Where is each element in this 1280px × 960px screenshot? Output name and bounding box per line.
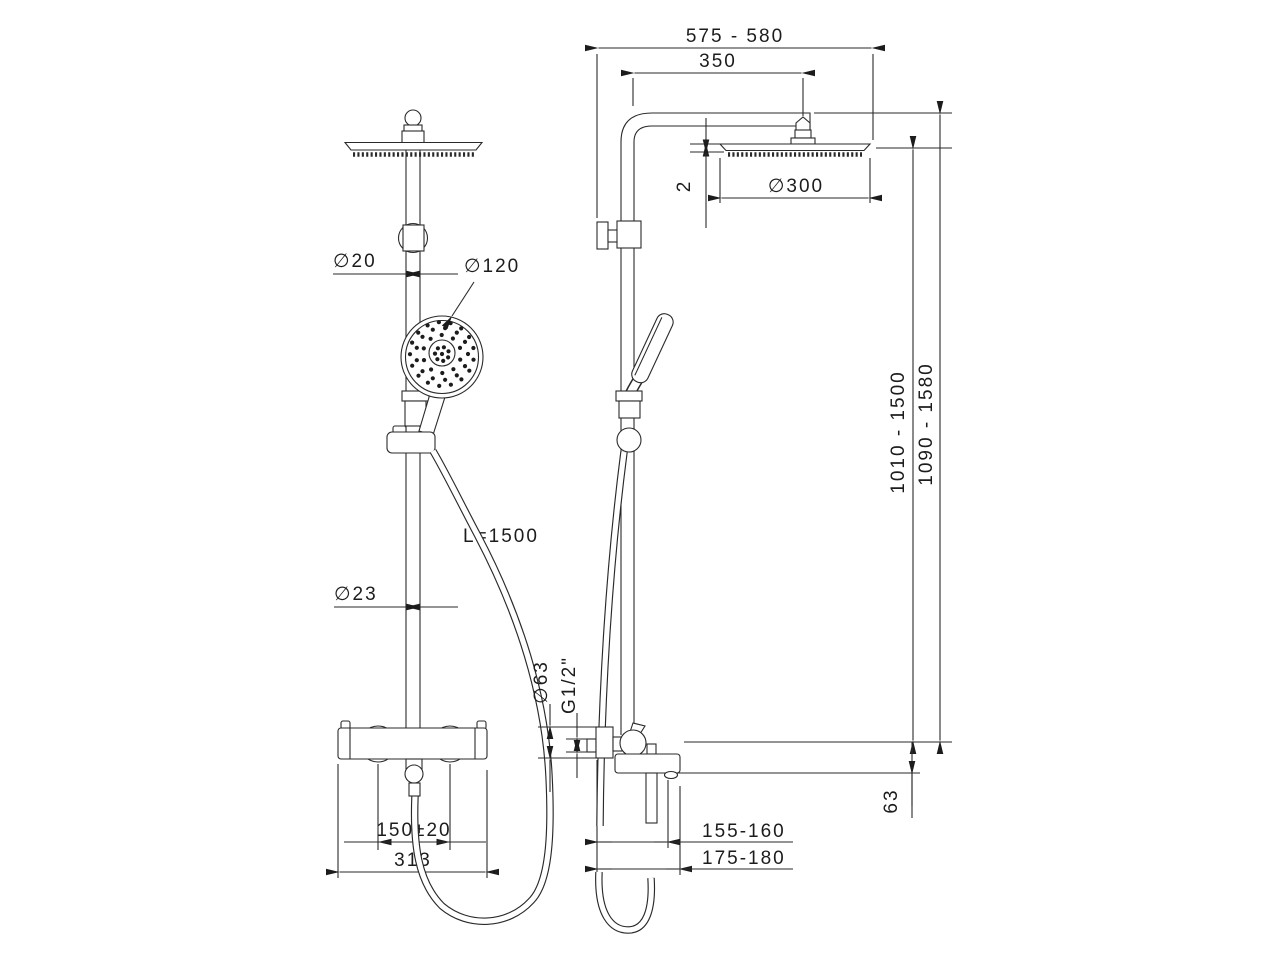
- dim-label-thread-size: G1/2": [559, 656, 580, 714]
- wall-thread-nipple: [587, 739, 596, 752]
- hose-outlet-side: [665, 772, 678, 779]
- wall-bracket-front: [399, 224, 428, 253]
- dim-label-total-height-range: 1090 - 1580: [916, 362, 937, 485]
- dim-label-spout-reach: 155-160: [702, 821, 786, 842]
- dim-label-spout-offset: 63: [881, 788, 902, 813]
- rain-shower-head-side: [720, 144, 870, 155]
- hose-nipple-front: [409, 783, 420, 796]
- wall-bracket-side: [597, 221, 641, 249]
- spout-outlet-side: [646, 773, 657, 823]
- technical-drawing-page: ∅20 ∅120 L=1500 ∅23 150±20 313: [0, 0, 1280, 960]
- hand-shower-side: [616, 311, 676, 452]
- shower-system-dimension-drawing: ∅20 ∅120 L=1500 ∅23 150±20 313: [0, 0, 1280, 960]
- dim-label-hose-connection-reach: 175-180: [702, 848, 786, 869]
- dim-label-lower-riser-diameter: ∅23: [334, 584, 378, 605]
- rain-shower-head-front: [345, 143, 482, 155]
- slider-ball-side: [617, 428, 641, 452]
- dim-label-head-diameter: ∅300: [768, 176, 824, 197]
- head-ball-joint-side: [791, 117, 815, 144]
- dim-label-mixer-width: 313: [394, 850, 432, 871]
- riser-and-arm-side: [621, 113, 810, 735]
- dim-label-arm-reach: 350: [699, 51, 737, 72]
- slider-holder-side: [616, 391, 642, 401]
- dim-label-riser-diameter: ∅20: [333, 251, 377, 272]
- mixer-knob-side: [620, 730, 646, 756]
- top-finial-front: [402, 110, 424, 143]
- dim-label-total-reach: 575 - 580: [686, 26, 784, 47]
- mixer-body-side: [615, 754, 680, 773]
- mixer-front: [338, 721, 487, 783]
- front-view: ∅20 ∅120 L=1500 ∅23 150±20 313: [333, 110, 550, 921]
- dim-label-hand-shower-diameter: ∅120: [464, 256, 520, 277]
- dim-label-head-thickness: 2: [674, 180, 695, 193]
- dim-label-escutcheon-diameter: ∅63: [531, 660, 552, 704]
- side-view: 575 - 580 350 ∅300 2 1010 - 1500 1090: [531, 26, 952, 930]
- dim-label-riser-height-range: 1010 - 1500: [888, 370, 909, 493]
- shower-hose-side: [599, 452, 652, 930]
- wall-escutcheon: [596, 727, 613, 758]
